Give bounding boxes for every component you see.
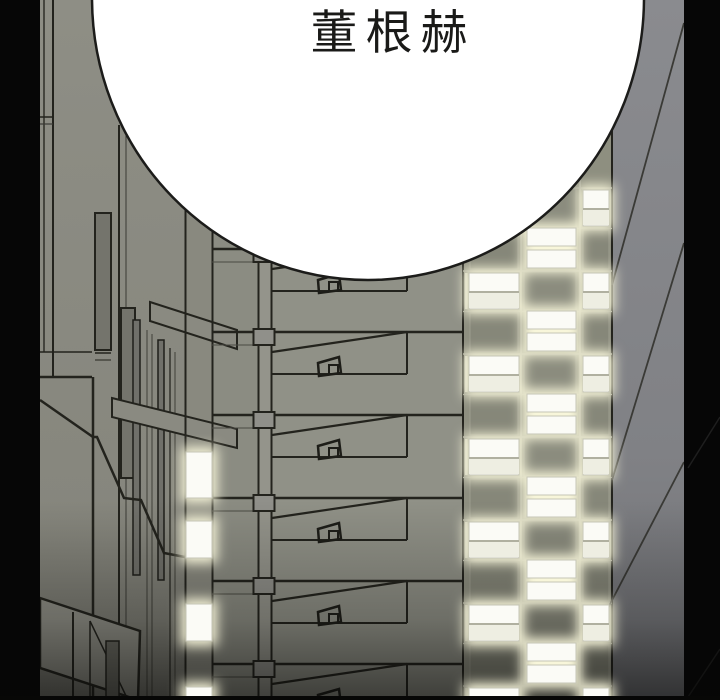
speech-bubble-text: 董根赫 bbox=[311, 6, 476, 61]
comic-panel: 董根赫 bbox=[0, 0, 720, 700]
bottom-black-bar bbox=[0, 696, 720, 700]
scene-svg: 董根赫 bbox=[0, 0, 720, 700]
left-window-1 bbox=[95, 213, 111, 350]
